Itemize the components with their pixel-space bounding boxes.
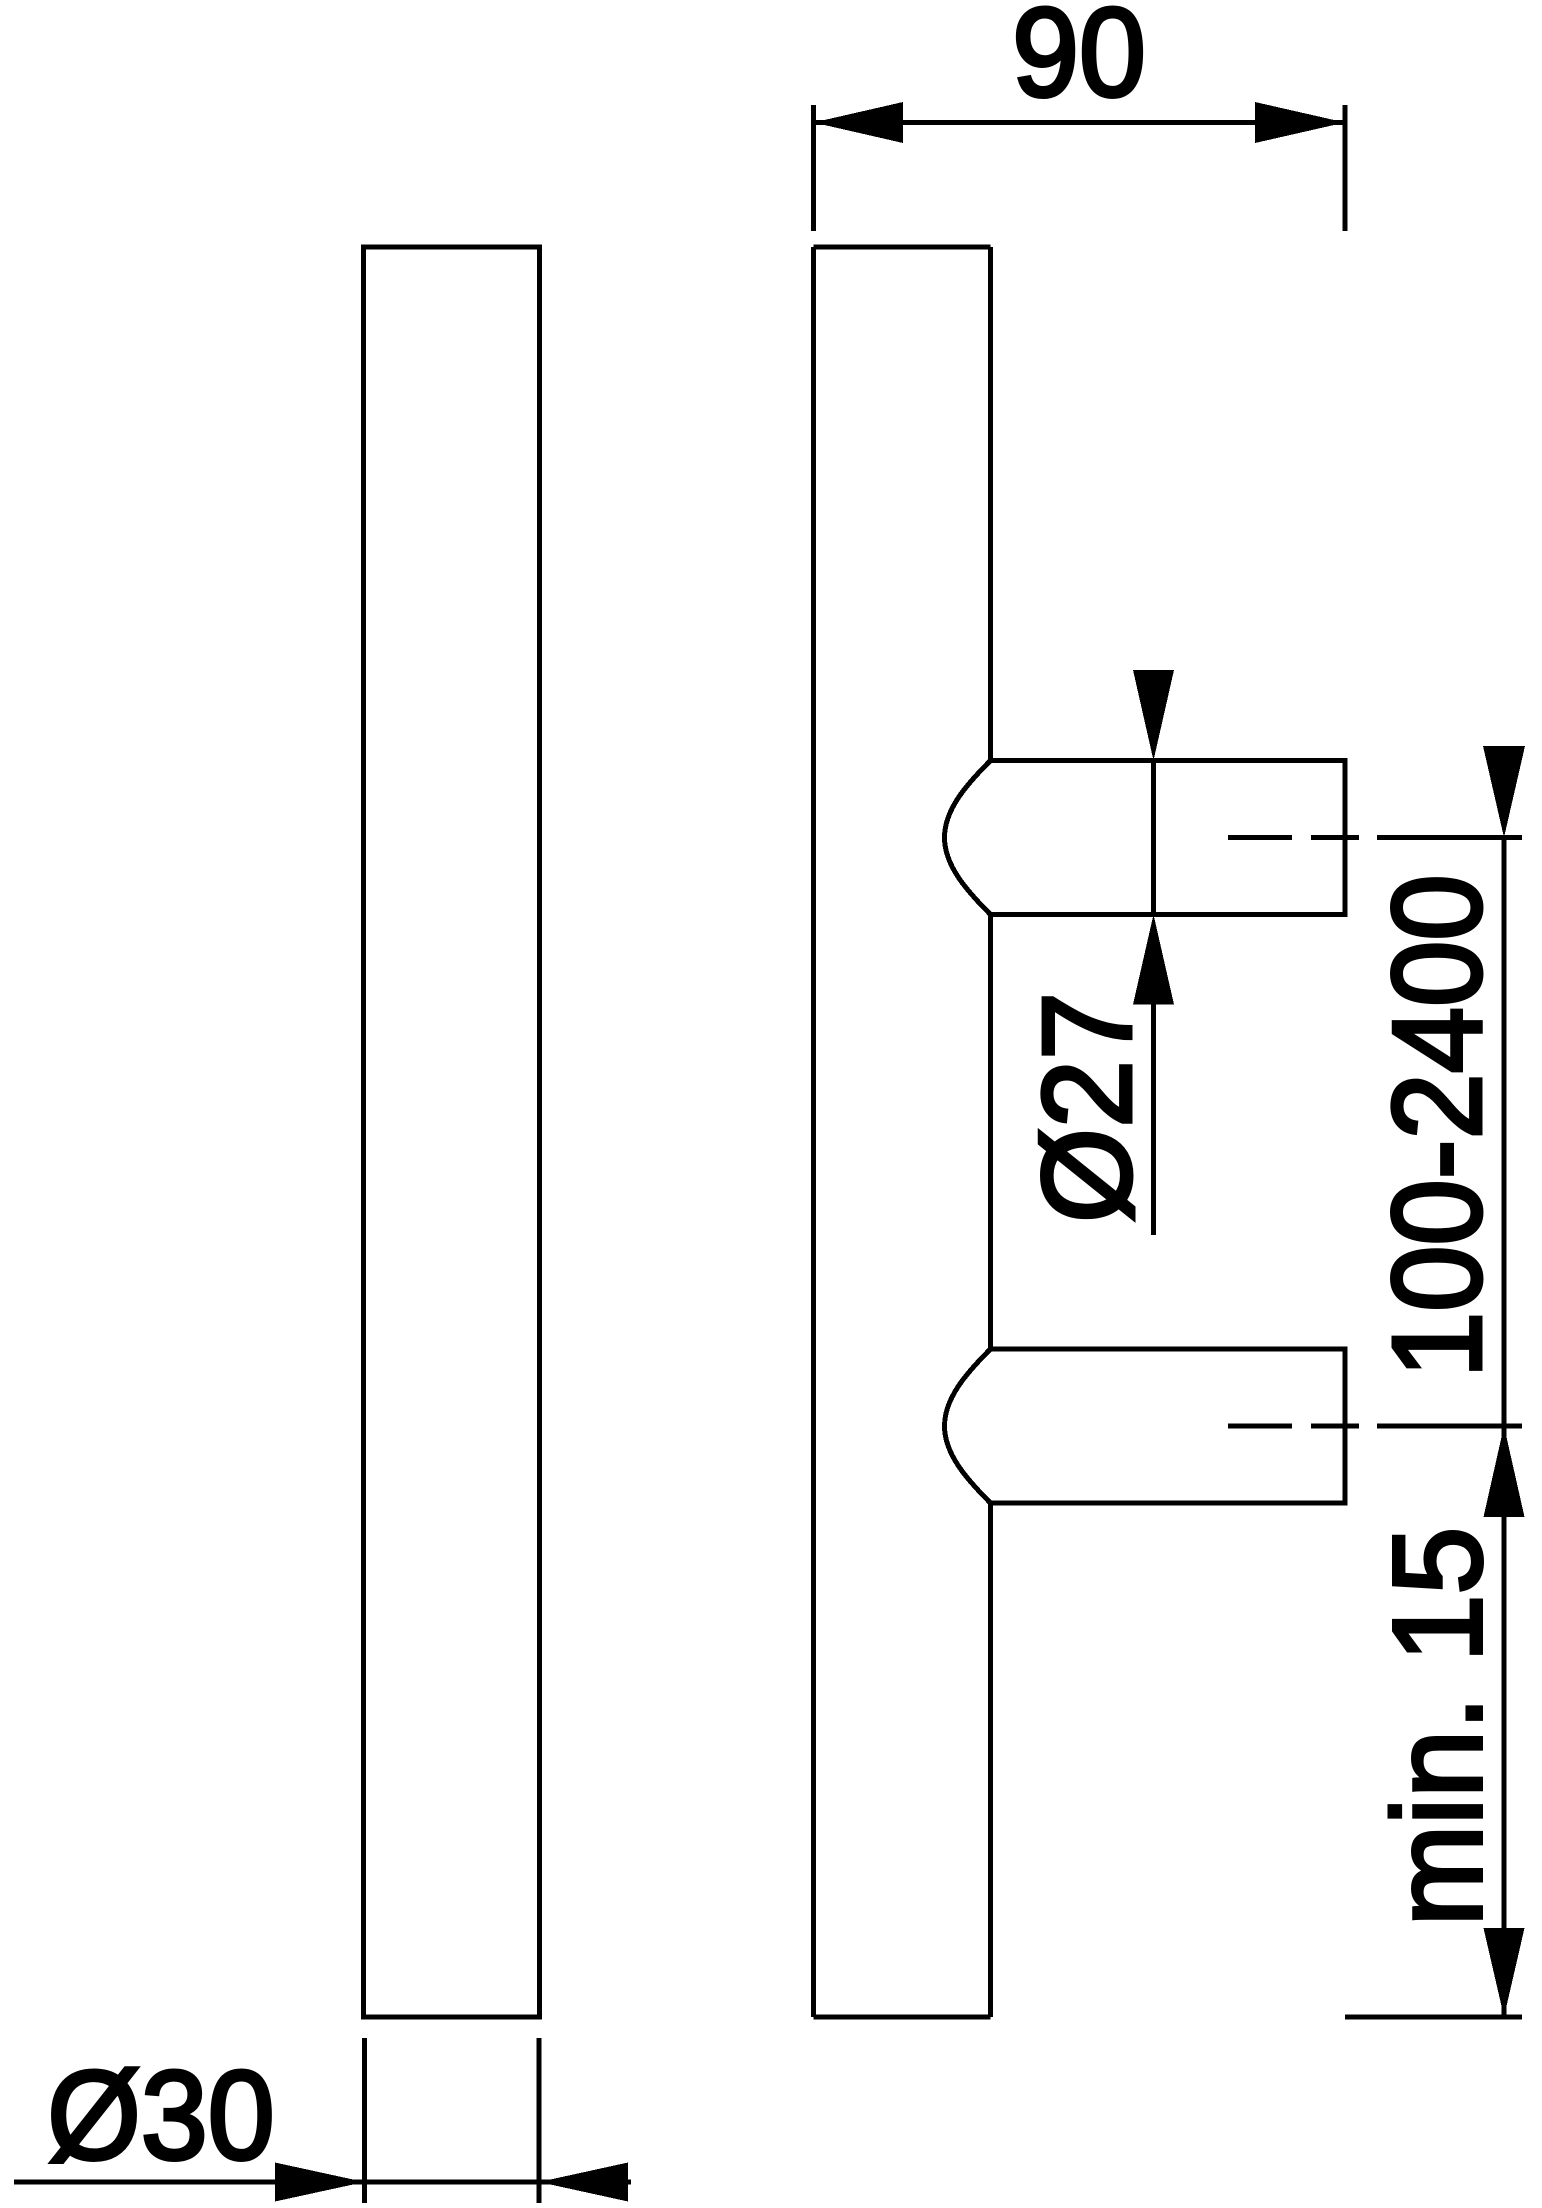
svg-text:Ø27: Ø27 [1018, 992, 1158, 1223]
svg-text:Ø30: Ø30 [47, 2045, 274, 2186]
svg-text:100-2400: 100-2400 [1366, 874, 1507, 1378]
svg-text:min. 15: min. 15 [1368, 1527, 1508, 1927]
svg-text:90: 90 [1012, 0, 1146, 124]
